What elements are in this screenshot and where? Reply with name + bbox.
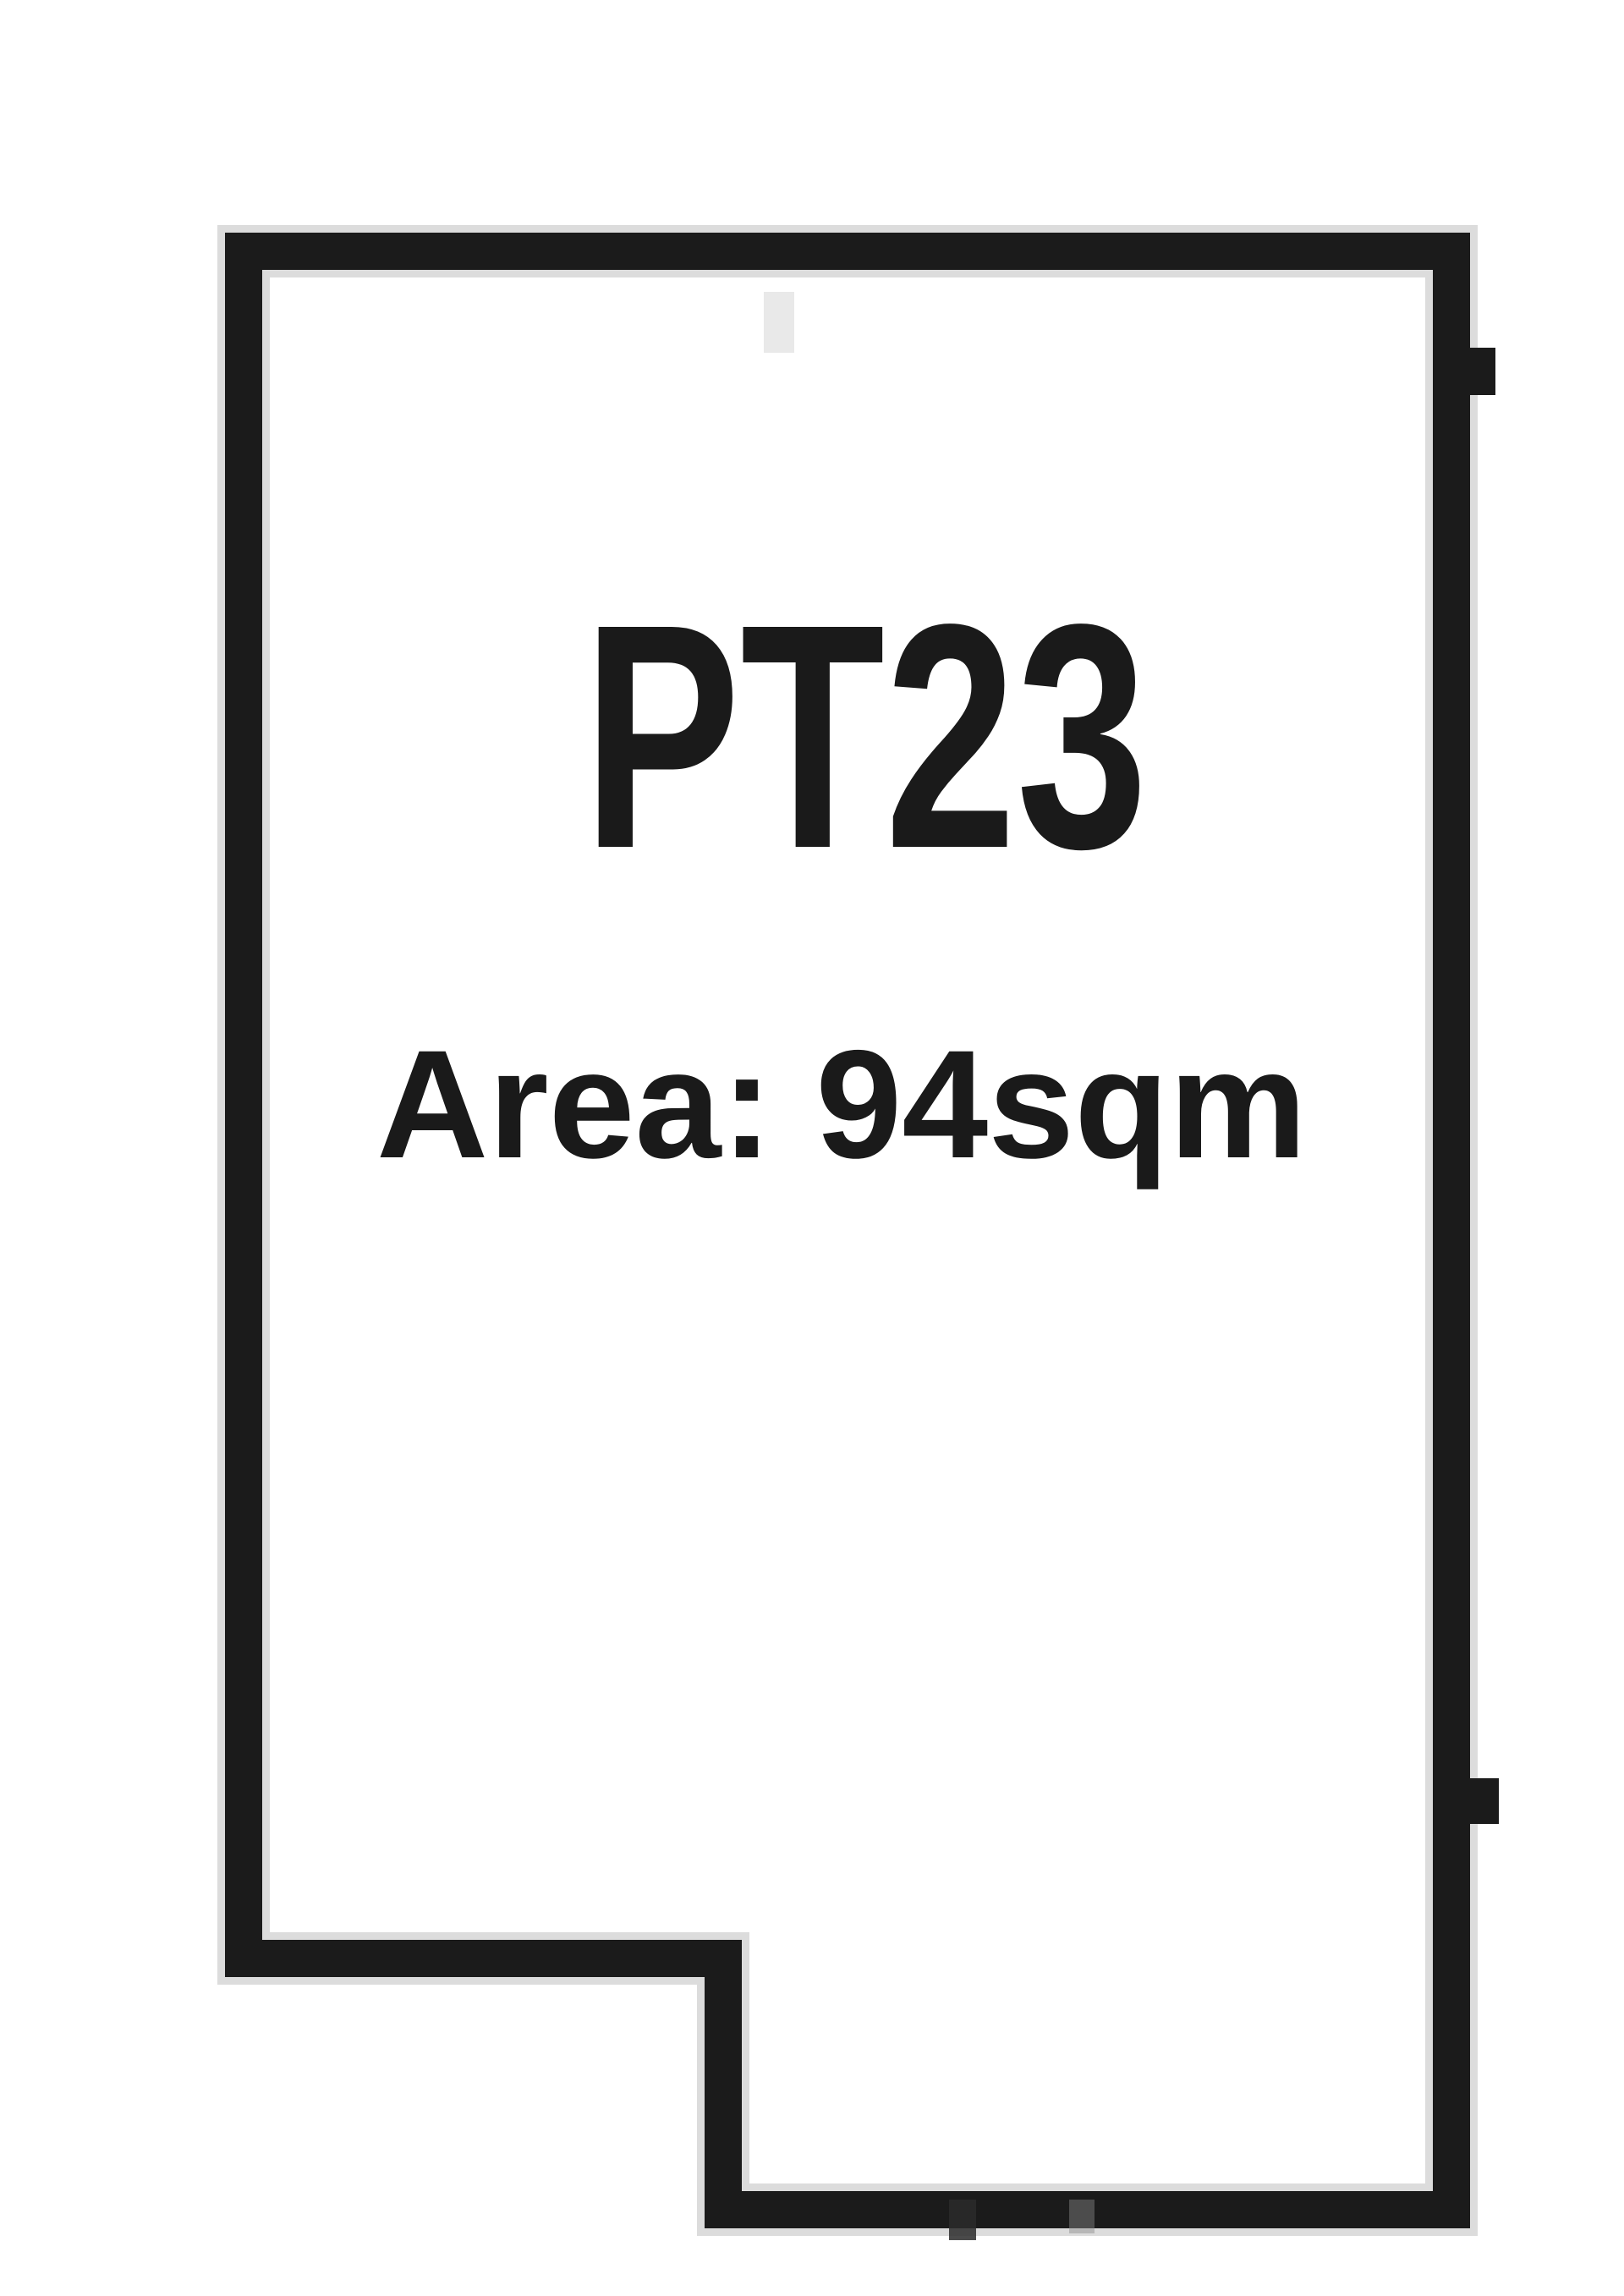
bottom-wall-nub-dark [949,2200,976,2240]
parcel-diagram-svg: PT23 Area: 94sqm [0,0,1624,2296]
parcel-id-label: PT23 [583,558,1148,915]
bottom-wall-nub-light [1069,2200,1095,2233]
parcel-boundary-echo [244,251,1451,2210]
scan-smudge [764,292,794,353]
parcel-area-label: Area: 94sqm [376,1018,1307,1190]
boundary-tick-lower-right [1448,1778,1499,1824]
parcel-boundary [244,251,1451,2210]
boundary-tick-upper-right [1448,348,1495,395]
floor-plan-canvas: PT23 Area: 94sqm [0,0,1624,2296]
